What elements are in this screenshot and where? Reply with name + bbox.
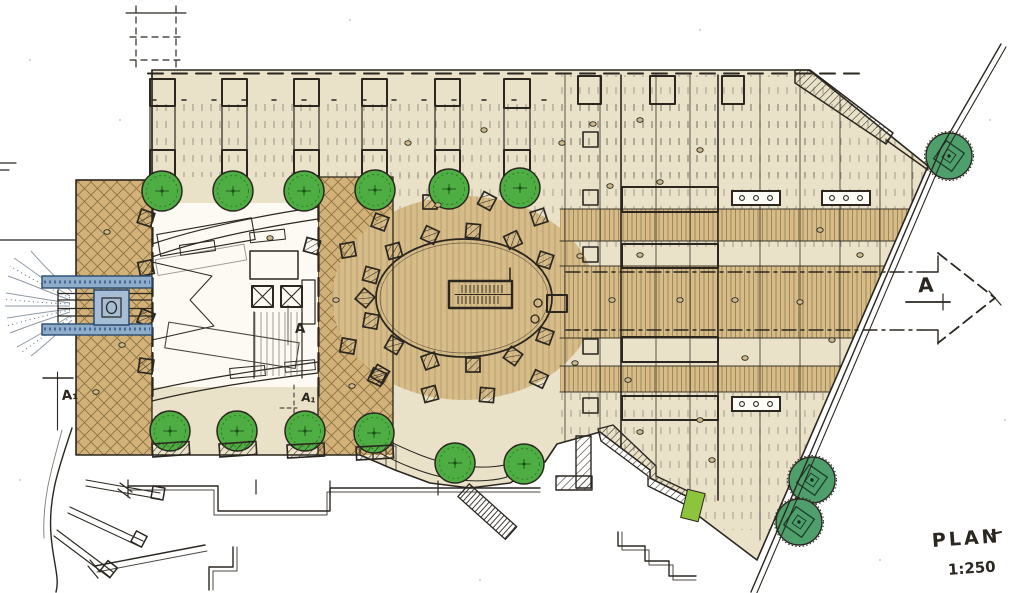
title-block: PLAN 1:250 xyxy=(931,525,1001,579)
section-label-left: A₁ xyxy=(61,387,79,404)
section-marker-left: A₁ xyxy=(43,372,79,430)
section-label-right: A xyxy=(917,273,934,298)
tree-dark xyxy=(775,498,824,547)
tree xyxy=(435,443,475,483)
water-spray xyxy=(5,251,72,356)
tree xyxy=(429,169,469,209)
court-section-label-a: A xyxy=(295,321,307,337)
court-section-label-a1: A₁ xyxy=(301,390,317,405)
bench xyxy=(732,397,780,411)
tree xyxy=(142,171,182,211)
tree xyxy=(284,171,324,211)
tree xyxy=(355,170,395,210)
plan-scale-label: 1:250 xyxy=(947,558,996,579)
site-plan-drawing: A A₁ xyxy=(0,0,1024,593)
tree xyxy=(500,168,540,208)
bench xyxy=(822,191,870,205)
section-arrow xyxy=(938,253,995,343)
bench xyxy=(732,191,780,205)
fountain-basin xyxy=(94,290,129,325)
tree xyxy=(213,171,253,211)
plan-title-label: PLAN xyxy=(931,525,1001,552)
tree-dark xyxy=(925,132,974,181)
tree xyxy=(504,444,544,484)
